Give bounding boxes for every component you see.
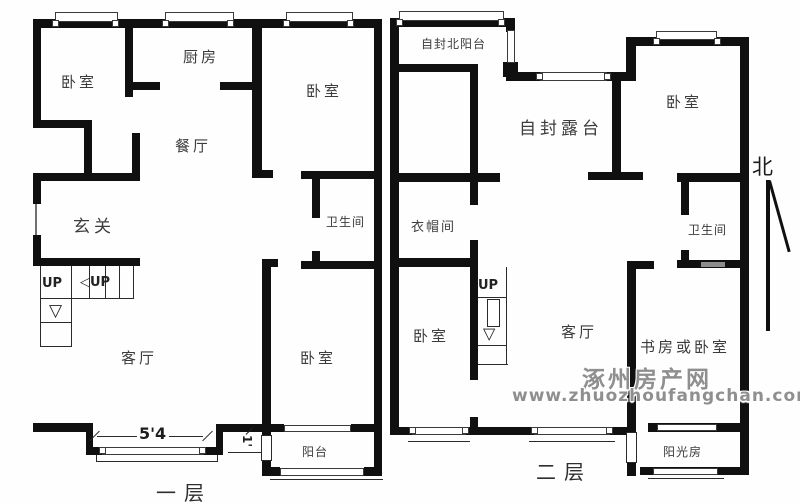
- window-cap: [462, 427, 469, 434]
- room-label-cloakroom: 衣帽间: [411, 216, 456, 235]
- wall: [223, 424, 262, 432]
- window-cap: [396, 19, 403, 26]
- sill-line: [96, 461, 218, 462]
- room-label-sunroom: 阳光房: [663, 443, 702, 460]
- window: [165, 12, 234, 22]
- wall: [681, 182, 689, 215]
- window-cap: [409, 427, 416, 434]
- stair-line: [119, 266, 120, 298]
- room-label-foyer: 玄关: [73, 212, 115, 237]
- north-label: 北: [752, 151, 773, 181]
- window-cap: [112, 20, 119, 27]
- wall: [374, 19, 382, 476]
- wall: [216, 424, 223, 452]
- wall: [390, 18, 399, 435]
- room-label-bathroom: 卫生间: [326, 213, 365, 230]
- wall: [740, 37, 749, 475]
- window: [286, 12, 353, 22]
- stairs-down-arrow-icon: ▽: [483, 326, 495, 342]
- window: [55, 12, 118, 22]
- window-cap: [714, 38, 721, 45]
- window-cap: [52, 20, 59, 27]
- window-cap: [653, 38, 660, 45]
- room-label-bedroom: 卧室: [61, 71, 97, 92]
- wall: [312, 179, 320, 218]
- stair-flight: [487, 299, 500, 327]
- wall: [262, 259, 271, 436]
- north-arrow-icon: [766, 180, 770, 331]
- wall: [390, 64, 474, 72]
- wall: [133, 82, 160, 90]
- stair-line: [506, 267, 507, 364]
- window-cap: [227, 20, 234, 27]
- sill-line: [270, 479, 383, 480]
- stair-line: [478, 297, 506, 298]
- bathroom-window: [701, 262, 725, 267]
- stair-line: [40, 298, 134, 299]
- wall: [301, 171, 382, 179]
- window: [412, 427, 466, 435]
- room-label-dining: 餐厅: [175, 135, 211, 156]
- wall: [252, 19, 262, 171]
- stair-line: [40, 266, 41, 347]
- balcony-door-dimension: 1': [240, 435, 254, 447]
- wall: [301, 261, 382, 269]
- window-cap: [604, 73, 611, 80]
- room-label-bedroom: 卧室: [300, 347, 336, 368]
- wall: [364, 467, 382, 476]
- wall: [33, 181, 41, 204]
- room-label-kitchen: 厨房: [183, 46, 219, 67]
- sill-line: [648, 478, 724, 479]
- window-cap: [536, 73, 543, 80]
- wall: [470, 64, 478, 205]
- stairs-up-side-label: ◁UP: [80, 275, 110, 290]
- window-cap: [283, 20, 290, 27]
- window: [534, 427, 610, 435]
- stair-line: [71, 266, 72, 347]
- stair-line: [478, 345, 506, 346]
- wall: [627, 462, 636, 476]
- room-label-north-balcony: 自封北阳台: [421, 35, 486, 52]
- floor-label-second: 二层: [536, 456, 592, 485]
- stair-line: [478, 364, 508, 365]
- north-arrow-icon: [768, 180, 791, 252]
- stairs-up-label: UP: [42, 276, 62, 291]
- wall: [506, 72, 540, 81]
- wall: [125, 19, 133, 97]
- wall: [33, 19, 41, 127]
- window: [507, 30, 515, 63]
- room-label-bedroom: 卧室: [306, 80, 342, 101]
- room-label-bedroom: 卧室: [666, 91, 702, 112]
- wall: [132, 133, 140, 181]
- sill-line: [529, 441, 615, 442]
- sill-line: [408, 441, 470, 442]
- window: [657, 424, 717, 431]
- room-label-terrace: 自封露台: [519, 114, 603, 139]
- sill-line: [217, 455, 218, 462]
- window: [284, 425, 351, 432]
- wall: [271, 424, 284, 432]
- wall: [588, 172, 643, 180]
- stair-line: [133, 266, 134, 298]
- dimension-line: [228, 452, 262, 453]
- wall: [612, 81, 621, 180]
- stairs-up-label: UP: [478, 278, 498, 293]
- stairs-down-arrow-icon: ▽: [49, 303, 62, 320]
- stair-line: [40, 346, 72, 347]
- window: [540, 72, 607, 81]
- entry-door-line: [35, 204, 37, 235]
- patio-door-opening: [102, 447, 204, 455]
- window: [399, 11, 504, 21]
- room-label-bedroom: 卧室: [413, 325, 449, 346]
- room-label-living: 客厅: [561, 321, 597, 342]
- room-label-study: 书房或卧室: [640, 336, 730, 357]
- stair-line: [40, 322, 72, 323]
- wall: [262, 467, 280, 476]
- room-label-living: 客厅: [121, 347, 157, 368]
- room-label-bathroom: 卫生间: [688, 221, 727, 238]
- dimension-line: [169, 436, 203, 437]
- window: [656, 31, 717, 40]
- balcony-door: [261, 435, 272, 461]
- room-label-balcony: 阳台: [302, 443, 328, 460]
- window: [653, 468, 718, 475]
- wall: [627, 261, 636, 433]
- sill-line: [96, 455, 97, 462]
- wall: [470, 267, 478, 380]
- wall: [390, 173, 500, 182]
- wall: [252, 170, 273, 178]
- window: [280, 468, 364, 476]
- window-cap: [531, 427, 538, 434]
- window-cap: [606, 427, 613, 434]
- door-width-dimension: 5'4: [139, 424, 166, 443]
- dimension-line: [97, 436, 137, 437]
- window-cap: [498, 19, 505, 26]
- wall: [33, 258, 140, 266]
- floorplan-canvas: UP ◁UP ▽ 5'4 1' 卧室 厨房 卧室 餐厅 玄关 卫生间 客厅 卧室…: [0, 0, 800, 504]
- wall: [33, 423, 93, 432]
- window-cap: [199, 447, 206, 454]
- window-cap: [162, 20, 169, 27]
- wall: [84, 120, 92, 181]
- sunroom-door: [626, 432, 637, 463]
- floor-label-first: 一层: [156, 477, 212, 504]
- wall: [390, 258, 474, 267]
- window-cap: [347, 20, 354, 27]
- wall: [351, 424, 374, 432]
- wall: [220, 82, 252, 90]
- wall: [677, 173, 749, 182]
- window-cap: [99, 447, 106, 454]
- wall: [33, 173, 140, 181]
